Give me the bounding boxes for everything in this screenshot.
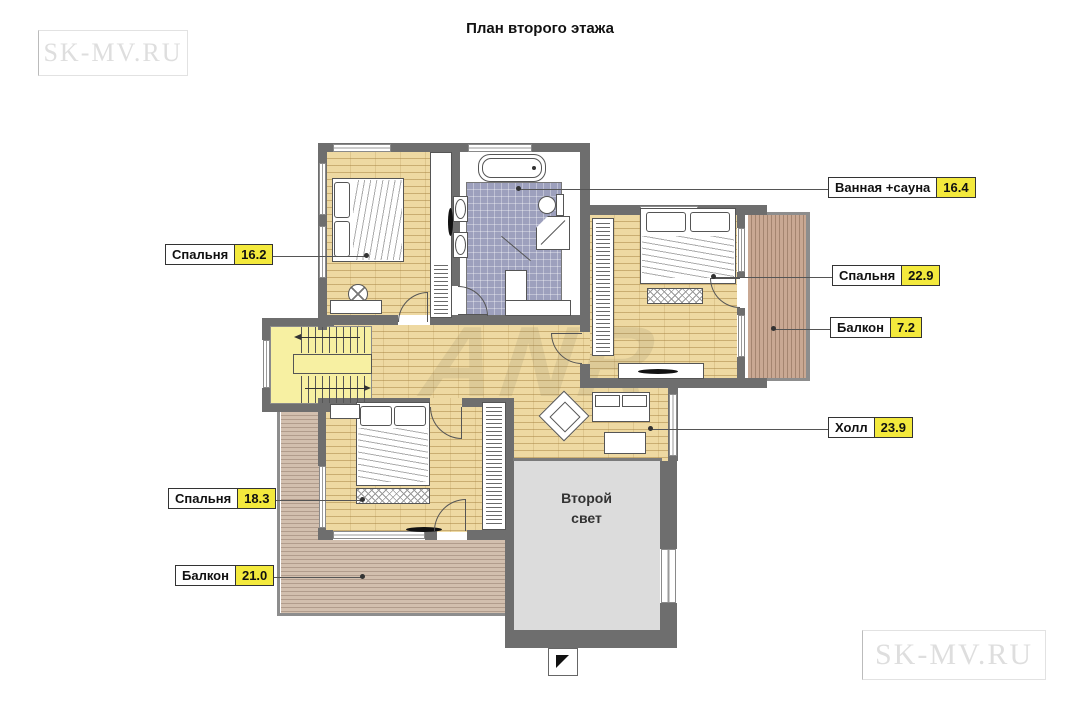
pillow: [646, 212, 686, 232]
door-leaf: [465, 499, 466, 531]
second-light-partition: [513, 458, 662, 461]
stair-arrow-head: [294, 334, 301, 340]
window: [319, 163, 326, 215]
leader-dot: [360, 497, 365, 502]
door-leaf: [427, 292, 428, 322]
leader-dot: [711, 274, 716, 279]
ottoman: [356, 488, 430, 504]
wall: [580, 364, 590, 388]
window: [333, 144, 391, 152]
room-label-bathroom-sauna: Ванная +сауна 16.4: [828, 177, 976, 198]
floor-second-light: [513, 461, 660, 633]
wardrobe-hangers: [483, 404, 505, 528]
room-area-badge: 16.2: [235, 244, 273, 265]
window: [263, 340, 270, 388]
bed-blanket: [358, 428, 428, 482]
leader-line: [262, 256, 366, 257]
wall: [590, 378, 745, 388]
pillow: [334, 182, 350, 218]
bed-blanket: [642, 236, 734, 278]
wall: [660, 461, 677, 549]
wall: [745, 205, 767, 215]
balcony-railing: [277, 406, 280, 616]
room-label-bedroom-bottom-left: Спальня 18.3: [168, 488, 276, 509]
door-leaf: [458, 314, 488, 315]
room-area-badge: 7.2: [891, 317, 922, 338]
wardrobe-hangers: [431, 262, 451, 316]
toilet-tank: [556, 194, 564, 216]
room-label-name: Ванная +сауна: [828, 177, 937, 198]
north-arrow-icon: [556, 655, 569, 668]
bathtub-drain: [532, 166, 536, 170]
room-label-name: Спальня: [832, 265, 902, 286]
room-area-badge: 22.9: [902, 265, 940, 286]
floor-plan-canvas: План второго этажа SK-MV.RU SK-MV.RU ANR: [0, 0, 1080, 720]
second-light-label: Второй свет: [513, 488, 660, 528]
door-leaf: [551, 333, 582, 334]
wall: [318, 530, 333, 540]
sauna-bench: [505, 300, 571, 316]
pillow: [690, 212, 730, 232]
wardrobe-hangers: [593, 220, 613, 354]
wall: [467, 530, 510, 540]
pillow: [360, 406, 392, 426]
window: [738, 315, 745, 357]
leader-dot: [360, 574, 365, 579]
window: [319, 466, 326, 528]
stair-treads: [295, 376, 371, 403]
leader-dot: [364, 253, 369, 258]
stair-treads: [295, 327, 371, 353]
coffee-table: [604, 432, 646, 454]
room-area-badge: 18.3: [238, 488, 276, 509]
room-label-balcony-bottom: Балкон 21.0: [175, 565, 274, 586]
window: [661, 549, 676, 603]
room-label-balcony-right: Балкон 7.2: [830, 317, 922, 338]
watermark-logo-bottom-right: SK-MV.RU: [862, 630, 1046, 680]
leader-line: [262, 577, 362, 578]
balcony-railing: [806, 212, 810, 381]
wall: [580, 143, 590, 332]
leader-dot: [516, 186, 521, 191]
stair-arrow: [300, 337, 360, 338]
room-label-name: Балкон: [175, 565, 236, 586]
wall: [737, 308, 745, 315]
room-label-name: Холл: [828, 417, 875, 438]
stair-arrow-head: [364, 385, 371, 391]
leader-line: [520, 189, 828, 190]
window: [333, 531, 425, 539]
room-area-badge: 21.0: [236, 565, 274, 586]
window: [468, 144, 532, 152]
second-light-line1: Второй: [513, 488, 660, 508]
leader-dot: [771, 326, 776, 331]
door-leaf: [461, 407, 462, 439]
pillow: [394, 406, 426, 426]
room-label-bedroom-right: Спальня 22.9: [832, 265, 940, 286]
stair-landing-rail: [293, 354, 372, 374]
sink-bowl: [455, 235, 466, 255]
wall: [262, 318, 334, 326]
room-area-badge: 23.9: [875, 417, 913, 438]
sofa-cushion: [622, 395, 647, 407]
floor-balcony-right: [748, 215, 806, 378]
wall: [318, 398, 326, 466]
shelf: [330, 404, 360, 419]
window: [738, 228, 745, 272]
room-label-bedroom-top-left: Спальня 16.2: [165, 244, 273, 265]
leader-line: [775, 329, 830, 330]
room-label-name: Балкон: [830, 317, 891, 338]
second-light-line2: свет: [513, 508, 660, 528]
leader-line: [652, 429, 828, 430]
leader-line: [715, 277, 832, 278]
leader-dot: [648, 426, 653, 431]
toilet-bowl: [538, 196, 556, 214]
room-area-badge: 16.4: [937, 177, 975, 198]
wall: [745, 378, 767, 388]
window: [669, 394, 677, 456]
cabinet: [330, 300, 382, 314]
sink-bowl: [455, 199, 466, 219]
stair-arrow: [305, 388, 365, 389]
wall: [737, 205, 745, 228]
balcony-railing: [277, 613, 508, 616]
room-label-hall: Холл 23.9: [828, 417, 913, 438]
watermark-logo-top-left: SK-MV.RU: [38, 30, 188, 76]
sofa-cushion: [595, 395, 620, 407]
ottoman: [647, 288, 703, 304]
wall: [430, 315, 590, 325]
bed-blanket: [353, 180, 402, 260]
wall: [505, 630, 677, 648]
dresser-handle: [638, 369, 678, 374]
room-label-name: Спальня: [165, 244, 235, 265]
pillow: [334, 221, 350, 257]
room-label-name: Спальня: [168, 488, 238, 509]
window: [319, 226, 326, 278]
